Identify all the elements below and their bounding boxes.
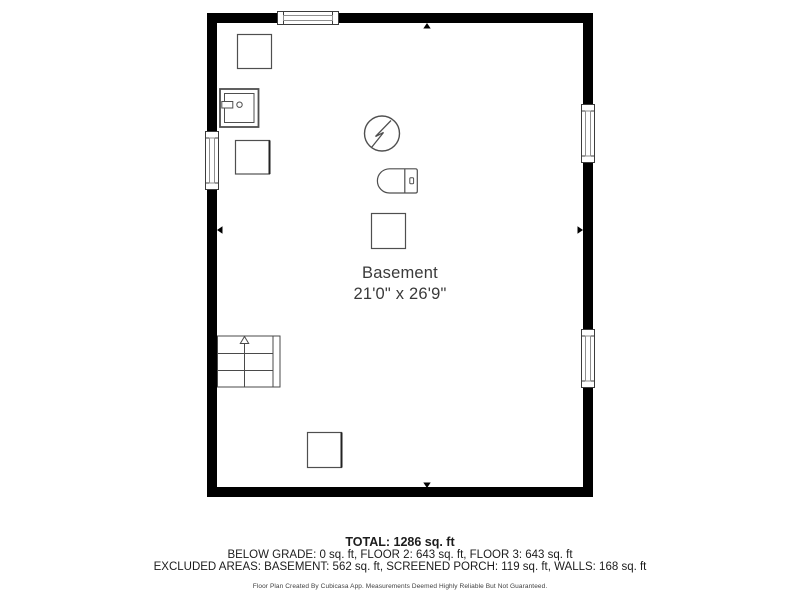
room-name: Basement — [217, 263, 583, 284]
storage-box-icon — [238, 35, 272, 69]
toilet-icon — [377, 169, 417, 193]
total-area-text: TOTAL: 1286 sq. ft — [0, 536, 800, 549]
disclaimer-text: Floor Plan Created By Cubicasa App. Meas… — [0, 581, 800, 594]
storage-box-icon — [372, 214, 406, 249]
exterior-walls — [207, 13, 593, 497]
wall-marker-top-icon — [423, 23, 430, 29]
room-label: Basement 21'0" x 26'9" — [217, 263, 583, 305]
electric-water-heater-icon — [365, 116, 400, 151]
storage-box-icon — [308, 433, 342, 468]
wall-marker-right-icon — [578, 226, 584, 233]
window-right-lower-icon — [582, 330, 595, 388]
staircase-up-icon — [218, 336, 281, 387]
window-right-upper-icon — [582, 105, 595, 163]
window-top-icon — [278, 12, 339, 25]
excluded-areas-text: EXCLUDED AREAS: BASEMENT: 562 sq. ft, SC… — [0, 561, 800, 574]
wall-marker-left-icon — [217, 226, 223, 233]
window-left-icon — [206, 132, 219, 190]
storage-box-icon — [236, 141, 270, 175]
floor-plan-page: Basement 21'0" x 26'9" TOTAL: 1286 sq. f… — [0, 0, 800, 600]
floor-areas-text: BELOW GRADE: 0 sq. ft, FLOOR 2: 643 sq. … — [0, 549, 800, 562]
room-dimensions: 21'0" x 26'9" — [217, 284, 583, 305]
summary-footer: TOTAL: 1286 sq. ft BELOW GRADE: 0 sq. ft… — [0, 536, 800, 593]
washing-machine-icon — [220, 89, 259, 127]
